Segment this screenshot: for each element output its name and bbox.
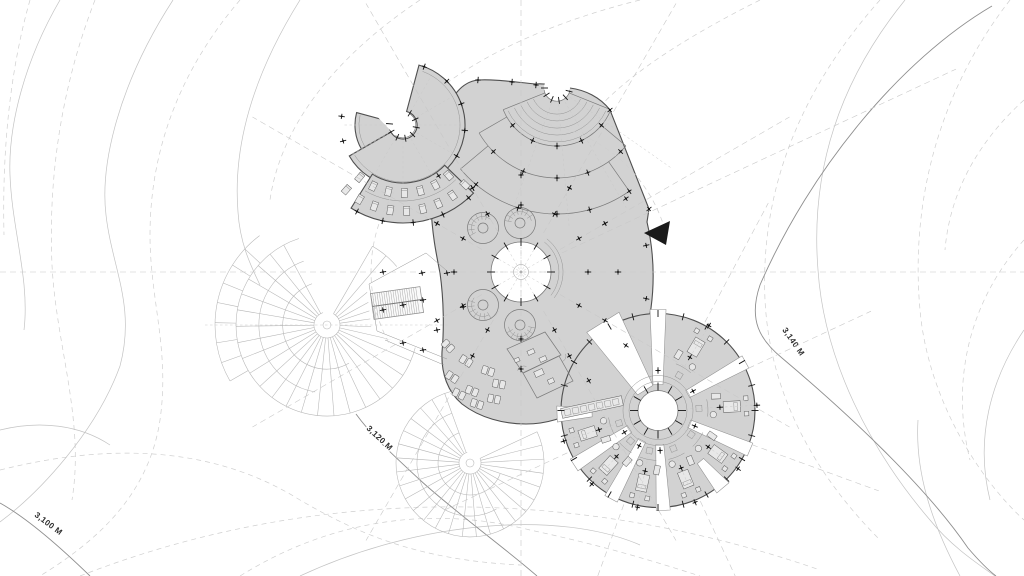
seat bbox=[403, 206, 409, 215]
seat bbox=[355, 172, 365, 183]
plan-graphic bbox=[492, 379, 499, 388]
terrace-web-small bbox=[396, 458, 459, 462]
plan-graphic bbox=[587, 271, 589, 273]
plan-graphic bbox=[401, 188, 407, 197]
plan-graphic bbox=[387, 205, 394, 215]
seat bbox=[387, 205, 394, 215]
edge-tick bbox=[386, 124, 393, 125]
plan-graphic bbox=[520, 204, 522, 206]
terrace-web-large bbox=[217, 303, 238, 307]
contour-label-3100: 3,100 M bbox=[33, 510, 64, 537]
terrace-web-small bbox=[462, 474, 469, 537]
plan-graphic bbox=[756, 404, 758, 406]
plan-graphic bbox=[453, 271, 455, 273]
plan-graphic bbox=[340, 115, 342, 117]
terrace-web-large bbox=[301, 338, 323, 413]
terrace-web-large bbox=[328, 338, 334, 416]
terrace-web-large bbox=[232, 265, 250, 276]
plan-graphic bbox=[556, 177, 558, 179]
terrace-web-large bbox=[314, 313, 340, 338]
axis-line bbox=[752, 445, 879, 491]
terrace-web-large bbox=[216, 340, 237, 343]
terrace-web-small bbox=[480, 432, 537, 459]
terrace-web-small bbox=[459, 452, 481, 474]
contour-line-3100 bbox=[0, 503, 90, 576]
plan-graphic bbox=[743, 396, 748, 401]
terrace-web-large bbox=[230, 371, 248, 382]
seat bbox=[341, 184, 351, 195]
terrace-web-small bbox=[481, 465, 543, 474]
terrace-web-small bbox=[399, 444, 460, 460]
axis-line bbox=[700, 501, 757, 576]
plan-graphic bbox=[499, 380, 506, 389]
terrace-web-large bbox=[330, 338, 350, 413]
axis-line bbox=[749, 311, 871, 368]
terrace-web-small bbox=[466, 459, 474, 467]
terrace-web-small bbox=[481, 445, 542, 460]
plan-graphic bbox=[657, 370, 659, 372]
plan-graphic bbox=[694, 501, 697, 504]
site-plan: 3,100 M 3,120 M 3,140 M bbox=[0, 0, 1024, 576]
plan-graphic bbox=[556, 213, 558, 215]
contour-line-3140 bbox=[755, 6, 996, 576]
site-plan-drawing: 3,100 M 3,120 M 3,140 M bbox=[0, 0, 1024, 576]
terrace-web-large bbox=[336, 334, 392, 388]
plan-graphic bbox=[382, 271, 384, 273]
plan-graphic bbox=[342, 140, 344, 142]
terrace-web-large bbox=[236, 325, 314, 326]
seat bbox=[401, 188, 407, 197]
terrace-web-large bbox=[242, 330, 315, 359]
terrace-web-small bbox=[481, 459, 544, 462]
terrace-web-large bbox=[259, 261, 315, 392]
plan-graphic bbox=[711, 393, 720, 399]
contour-label-3140: 3,140 M bbox=[780, 326, 806, 358]
plan-graphic bbox=[520, 174, 522, 176]
terrace-web-large bbox=[222, 356, 242, 363]
terrace-web-large bbox=[223, 283, 242, 291]
plan-graphic bbox=[744, 411, 749, 416]
plan-graphic bbox=[556, 145, 558, 147]
axis-line bbox=[705, 203, 768, 322]
plan-graphic bbox=[645, 496, 650, 501]
plan-graphic bbox=[710, 411, 717, 418]
plan-graphic bbox=[629, 493, 634, 498]
terrace-web-small bbox=[438, 433, 500, 495]
terrace-web-small bbox=[432, 400, 464, 454]
grid-marker bbox=[338, 113, 345, 119]
ring-courtyard bbox=[638, 391, 678, 431]
plan-graphic bbox=[520, 368, 522, 370]
terrace-web-small bbox=[404, 431, 461, 459]
terrace-web-large bbox=[318, 338, 326, 416]
plan-graphic bbox=[617, 271, 619, 273]
plan-graphic bbox=[636, 506, 638, 508]
plan-graphic bbox=[563, 440, 566, 443]
grid-marker bbox=[339, 138, 347, 145]
contour-label-3120: 3,120 M bbox=[365, 424, 395, 453]
plan-graphic bbox=[403, 206, 409, 215]
plan-graphic bbox=[520, 338, 522, 340]
